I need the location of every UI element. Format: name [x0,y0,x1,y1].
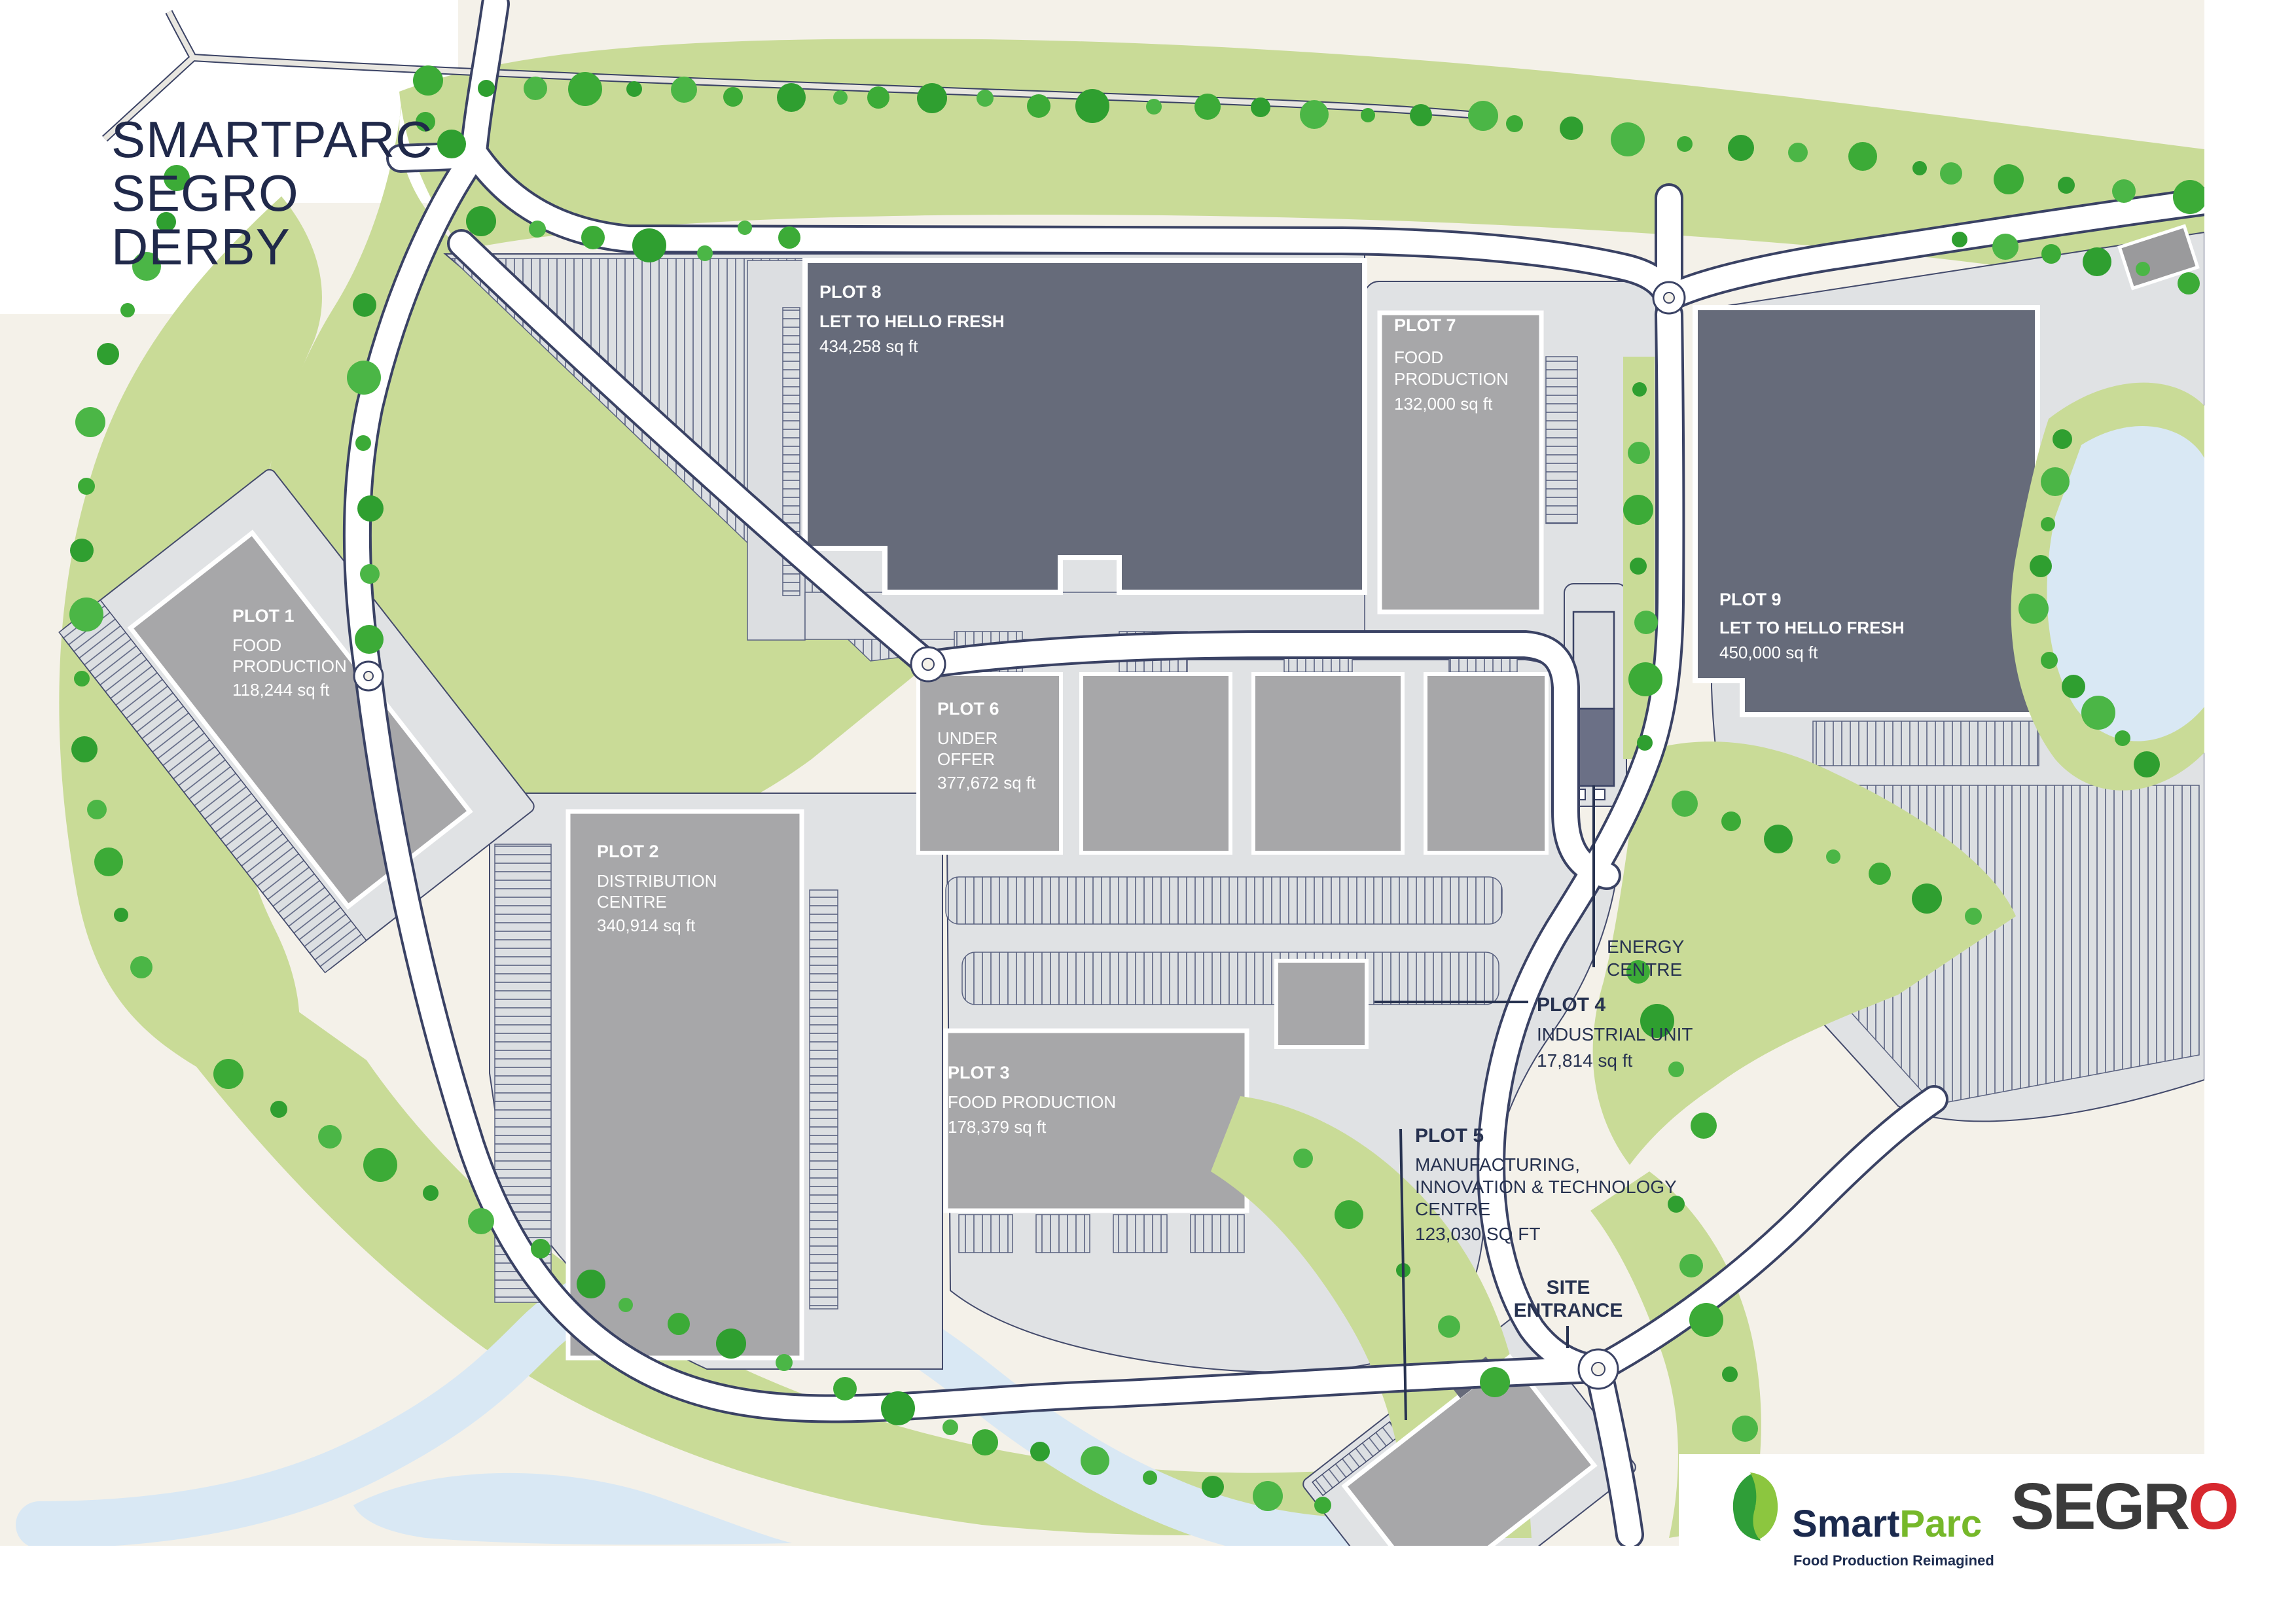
tree-icon [355,625,384,654]
tree-icon [777,83,806,112]
tree-icon [1361,108,1375,122]
tree-icon [1994,164,2024,194]
plot-7-use: FOOD [1394,348,1443,367]
central-parking-row [962,952,1499,1005]
plot-3-use: FOOD PRODUCTION [948,1092,1116,1112]
plot-4-building [1276,961,1367,1047]
roundabout [1653,282,1685,313]
tree-icon [94,847,123,876]
tree-icon [833,1377,857,1400]
tree-icon [1691,1113,1717,1139]
tree-icon [2178,272,2200,294]
siteplan-page: PLOT 8 LET TO HELLO FRESH 434,258 sq ft … [0,0,2296,1623]
plot-1-use: FOOD [232,635,281,655]
tree-icon [942,1419,958,1435]
tree-icon [529,221,546,238]
site-entrance-label: SITE [1547,1277,1590,1298]
tree-icon [213,1059,243,1089]
plot-3-docks [959,1215,1013,1253]
plot-7-label: PLOT 7 [1394,315,1456,335]
tree-icon [2134,751,2160,777]
tree-icon [581,226,605,249]
tree-icon [671,77,697,103]
tree-icon [97,343,119,365]
tree-icon [1480,1367,1510,1397]
tree-icon [1912,161,1927,175]
tree-icon [1628,662,1662,696]
tree-icon [2112,179,2136,203]
tree-icon [1300,100,1329,129]
plot-7-docks [1546,357,1577,524]
smartparc-tagline: Food Production Reimagined [1793,1552,1994,1569]
plot-6-building-2 [1081,674,1230,853]
tree-icon [2041,467,2070,496]
roundabout [911,647,945,681]
tree-icon [1632,382,1647,397]
plot-2-label: PLOT 2 [597,842,659,861]
tree-icon [1468,101,1498,131]
right-margin [2204,0,2296,1623]
tree-icon [1965,908,1982,925]
tree-icon [833,90,848,105]
tree-icon [363,1148,397,1182]
plot-5-label: PLOT 5 [1415,1125,1484,1147]
tree-icon [716,1329,746,1359]
tree-icon [1668,1196,1685,1213]
tree-icon [972,1429,998,1455]
energy-centre-detail [1594,789,1605,800]
tree-icon [1634,611,1658,634]
tree-icon [347,361,381,395]
tree-icon [1679,1254,1703,1277]
tree-icon [2062,675,2085,698]
tree-icon [531,1239,550,1258]
tree-icon [74,671,90,687]
tree-icon [1628,442,1650,464]
plot-1-label: PLOT 1 [232,606,295,626]
title-line-1: SMARTPARC [111,111,433,168]
tree-icon [1826,849,1840,864]
tree-icon [2081,696,2115,730]
tree-icon [2083,247,2111,276]
tree-icon [2173,180,2207,214]
tree-icon [423,1185,439,1201]
tree-icon [1722,1366,1738,1382]
tree-icon [867,86,889,109]
segro-logo: SEGRO [2011,1470,2237,1543]
tree-icon [1027,94,1050,118]
tree-icon [75,407,105,437]
tree-icon [1075,89,1109,123]
plot-2-area: 340,914 sq ft [597,916,696,935]
tree-icon [1952,232,1967,247]
tree-icon [2030,555,2052,577]
tree-icon [2053,429,2072,449]
plot-1-area: 118,244 sq ft [232,680,330,700]
tree-icon [1848,142,1877,171]
tree-icon [1560,116,1583,140]
plot-3-docks [1113,1215,1167,1253]
plot-7-use: PRODUCTION [1394,369,1509,389]
tree-icon [1623,495,1653,525]
plot-9-label: PLOT 9 [1719,590,1782,609]
tree-icon [1630,558,1647,575]
plot-6-use: OFFER [937,749,995,769]
tree-icon [1672,791,1698,817]
tree-icon [360,564,380,584]
roundabout [354,662,383,690]
tree-icon [1202,1476,1224,1498]
tree-icon [778,226,800,249]
tree-icon [697,245,713,261]
tree-icon [776,1354,793,1371]
title-line-3: DERBY [111,218,291,276]
plot-8-label: PLOT 8 [819,282,882,302]
tree-icon [881,1391,915,1425]
tree-icon [1677,136,1693,152]
tree-icon [1146,99,1162,115]
plot-3-docks [1191,1215,1244,1253]
tree-icon [1253,1481,1283,1511]
tree-icon [2041,652,2058,669]
tree-icon [1506,115,1523,132]
tree-icon [632,228,666,262]
plot-9-use: LET TO HELLO FRESH [1719,618,1905,637]
tree-icon [1940,162,1962,185]
plot-6-label: PLOT 6 [937,699,999,719]
smartparc-wordmark: SmartParc [1792,1503,1982,1545]
tree-icon [1143,1471,1157,1485]
energy-centre-label: ENERGY [1607,936,1685,957]
tree-icon [1251,98,1270,117]
plot-2-docks-east [810,890,838,1309]
tree-icon [1293,1149,1313,1168]
plot-3-docks [1036,1215,1090,1253]
tree-icon [917,83,947,113]
plot-8-building [805,260,1365,592]
tree-icon [69,597,103,632]
central-parking-row [946,877,1502,924]
tree-icon [619,1298,633,1312]
plot-4-use: INDUSTRIAL UNIT [1537,1024,1693,1044]
plot-7-area: 132,000 sq ft [1394,394,1493,414]
tree-icon [353,293,376,317]
tree-icon [1728,135,1754,161]
title-line-2: SEGRO [111,164,299,222]
tree-icon [466,206,496,236]
tree-icon [413,65,443,96]
tree-icon [130,956,152,978]
tree-icon [2041,244,2061,264]
tree-icon [1732,1416,1758,1442]
tree-icon [1335,1200,1363,1229]
tree-icon [87,800,107,819]
plot-4-label: PLOT 4 [1537,994,1605,1016]
plot-6-building-4 [1426,674,1547,853]
tree-icon [668,1313,690,1335]
tree-icon [318,1125,342,1149]
tree-icon [478,80,495,97]
plot-5-use: CENTRE [1415,1199,1490,1219]
tree-icon [1764,825,1793,853]
tree-icon [2058,177,2075,194]
tree-icon [1194,94,1221,120]
siteplan-map: PLOT 8 LET TO HELLO FRESH 434,258 sq ft … [0,0,2296,1623]
tree-icon [1912,883,1942,914]
plot-6-building-3 [1253,674,1403,853]
tree-icon [78,478,95,495]
tree-icon [1410,104,1432,126]
tree-icon [2115,730,2130,746]
tree-icon [1721,811,1741,831]
tree-icon [437,130,466,158]
tree-icon [524,77,547,100]
tree-icon [738,221,752,235]
tree-icon [1689,1303,1723,1337]
plot-9-area: 450,000 sq ft [1719,643,1818,662]
tree-icon [1788,143,1808,162]
plot-2-use: CENTRE [597,892,667,912]
tree-icon [1081,1446,1109,1475]
plot-6-area: 377,672 sq ft [937,773,1036,793]
tree-icon [1637,735,1653,751]
tree-icon [2018,594,2049,624]
plot-5-use: MANUFACTURING, [1415,1154,1580,1175]
plot-3-label: PLOT 3 [948,1063,1010,1082]
plot-3-area: 178,379 sq ft [948,1117,1047,1137]
tree-icon [71,736,98,762]
tree-icon [1668,1061,1684,1077]
plot-1-use: PRODUCTION [232,656,347,676]
plot-8-use: LET TO HELLO FRESH [819,312,1005,331]
tree-icon [626,81,642,97]
plot-2-use: DISTRIBUTION [597,871,717,891]
tree-icon [1992,234,2018,260]
plot-4-area: 17,814 sq ft [1537,1050,1633,1071]
energy-centre-label: CENTRE [1607,959,1682,980]
tree-icon [1869,863,1891,885]
tree-icon [1438,1315,1460,1338]
plot-5-use: INNOVATION & TECHNOLOGY [1415,1177,1677,1197]
tree-icon [468,1208,494,1234]
tree-icon [270,1101,287,1118]
tree-icon [70,539,94,562]
plot-6-use: UNDER [937,728,997,748]
plot-8-area: 434,258 sq ft [819,336,918,356]
plot-5-area: 123,030 SQ FT [1415,1224,1540,1244]
tree-icon [2136,262,2150,276]
tree-icon [120,303,135,317]
tree-icon [1314,1497,1331,1514]
plot-9-docks [1813,721,2039,766]
tree-icon [1611,122,1645,156]
tree-icon [568,72,602,106]
roundabout [1579,1349,1618,1389]
tree-icon [355,435,371,451]
tree-icon [357,495,384,522]
tree-icon [577,1270,605,1298]
tree-icon [723,87,743,107]
tree-icon [2041,517,2055,531]
site-entrance-label: ENTRANCE [1514,1300,1623,1321]
tree-icon [977,90,994,107]
tree-icon [1030,1442,1050,1461]
tree-icon [114,908,128,922]
